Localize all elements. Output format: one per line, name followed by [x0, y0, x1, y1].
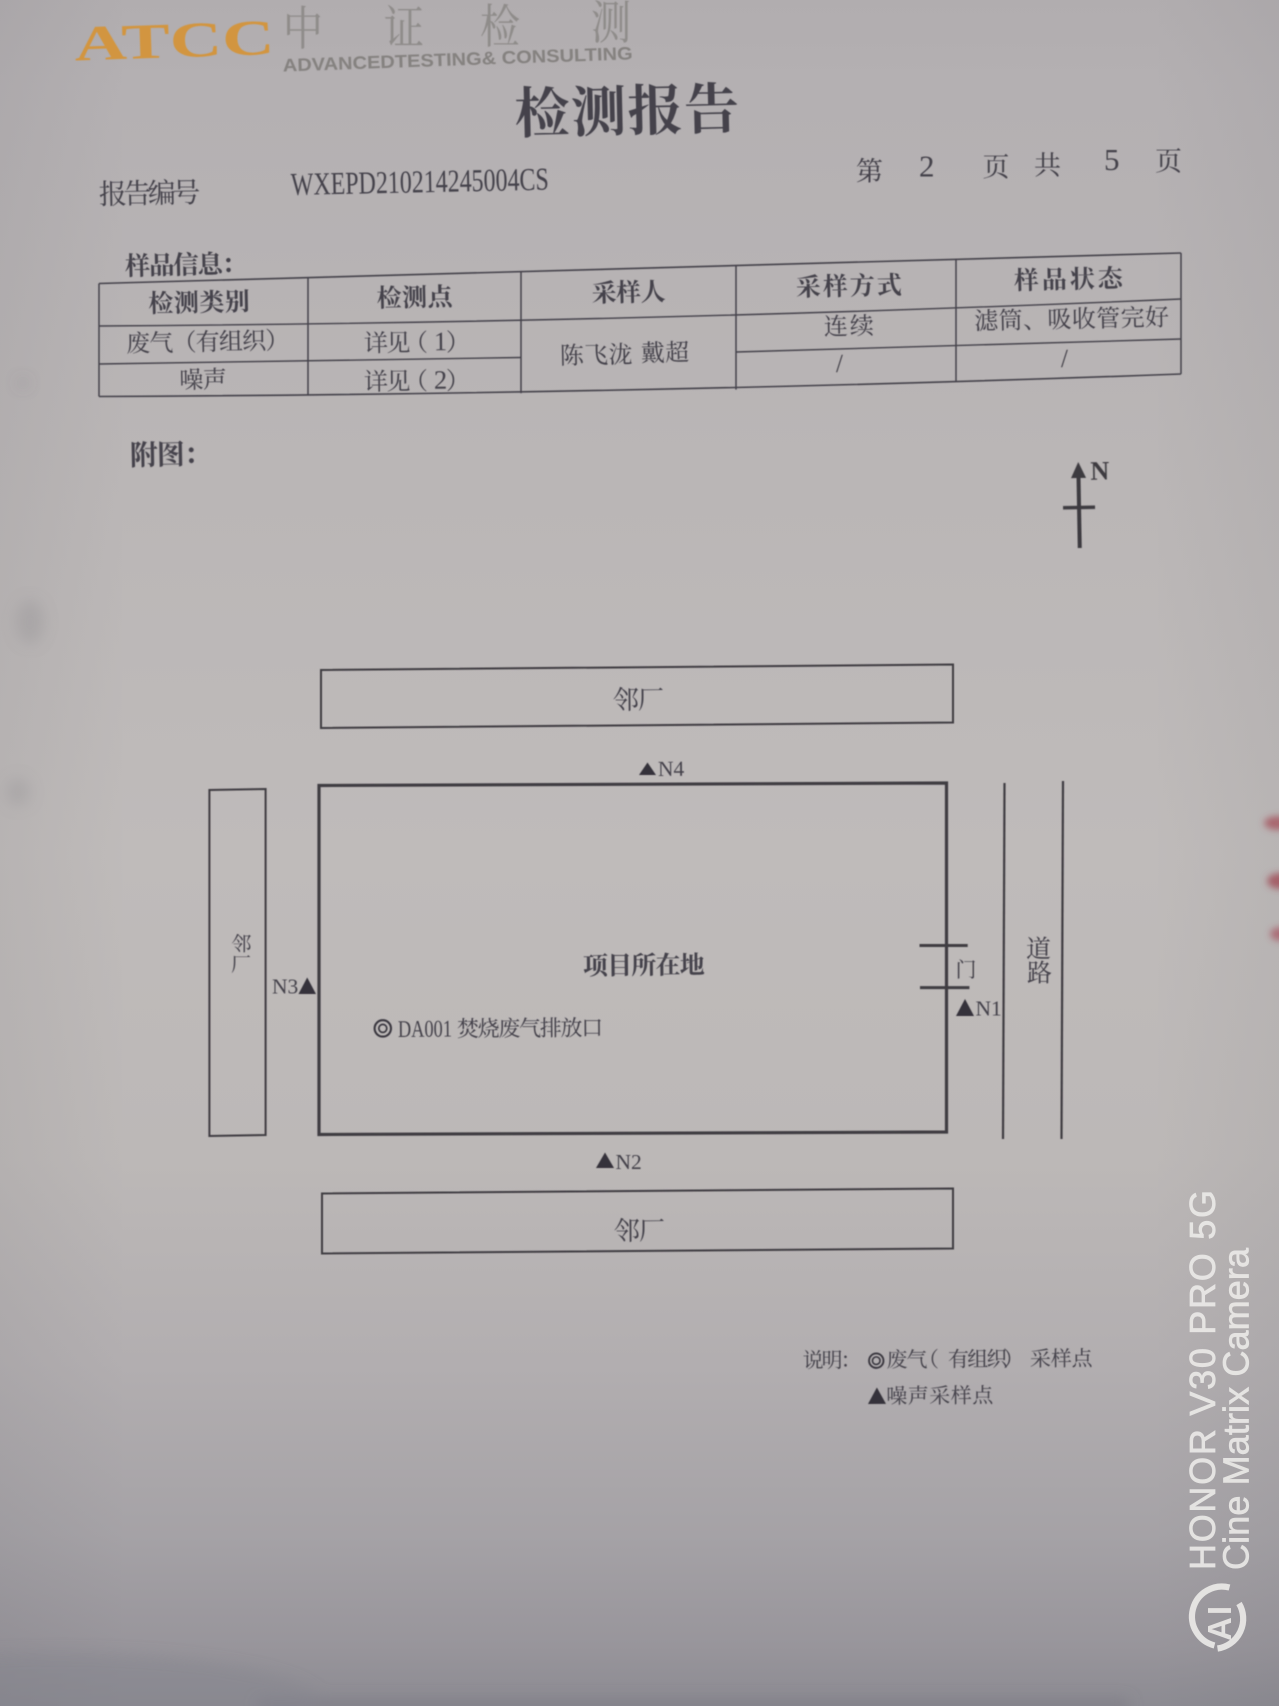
svg-text:DA001: DA001	[398, 1017, 452, 1043]
svg-text:/: /	[836, 349, 845, 378]
svg-text:N2: N2	[616, 1150, 642, 1174]
svg-text:1: 1	[434, 326, 448, 356]
svg-text:N3: N3	[272, 975, 298, 999]
svg-text:N: N	[1090, 456, 1110, 485]
svg-text:ATCC: ATCC	[74, 11, 276, 72]
svg-text:/: /	[1061, 344, 1070, 373]
svg-text:2: 2	[919, 148, 935, 183]
svg-text:AI: AI	[1201, 1604, 1238, 1641]
svg-text:2: 2	[434, 365, 448, 395]
svg-text:WXEPD210214245004CS: WXEPD210214245004CS	[290, 161, 549, 202]
svg-text:Cine Matrix Camera: Cine Matrix Camera	[1216, 1247, 1257, 1570]
svg-text:N4: N4	[658, 757, 685, 781]
svg-text:N1: N1	[976, 997, 1002, 1021]
svg-text:5: 5	[1104, 142, 1120, 177]
